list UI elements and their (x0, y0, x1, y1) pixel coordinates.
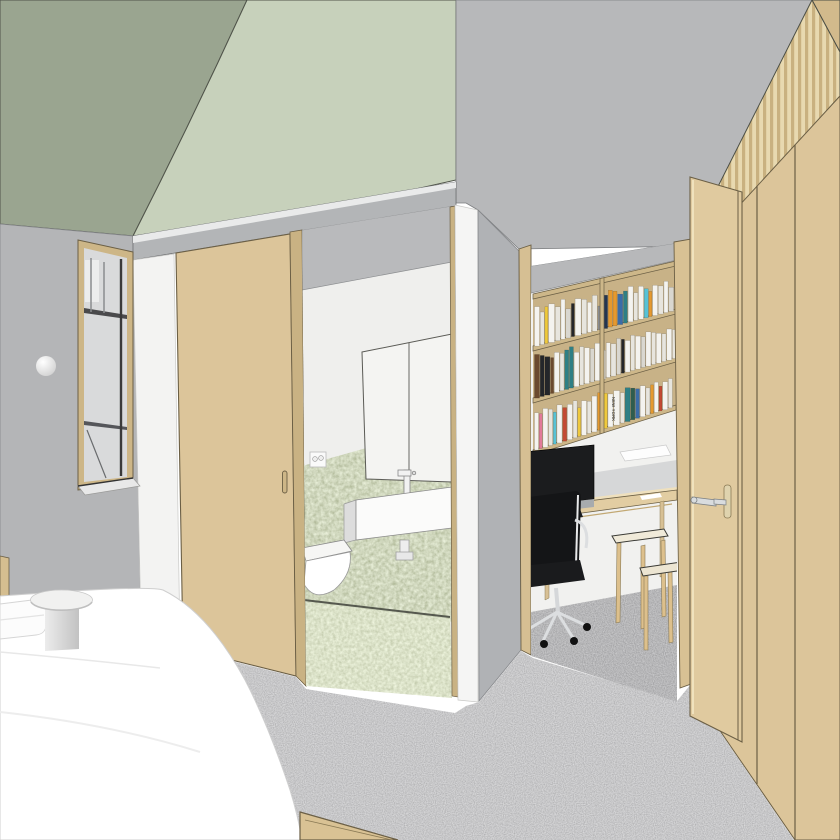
book-spine (618, 294, 623, 324)
book-spine (588, 302, 592, 332)
open-door-panel (690, 177, 742, 742)
book-spine (656, 333, 661, 363)
book-spine (595, 343, 600, 381)
book-spine (628, 286, 633, 321)
book-spine (634, 293, 638, 321)
book-spine (664, 281, 668, 312)
book-spine (557, 405, 562, 443)
sink-trap (396, 552, 413, 560)
book-spine (611, 344, 616, 376)
sink-side (344, 500, 356, 543)
interior-rendering: NEW YORK (0, 0, 840, 840)
book-spine (566, 309, 571, 338)
book-spine (567, 404, 572, 439)
sliding-door-recessed-pull (283, 471, 288, 493)
book-spine (569, 347, 573, 388)
book-spine (653, 285, 658, 315)
book-spine (640, 386, 645, 417)
window (78, 240, 140, 495)
book-spine (652, 332, 656, 364)
sliding-door-panel (176, 234, 296, 676)
book-spine (549, 304, 555, 343)
book-spine (639, 286, 644, 319)
book-spine (571, 304, 574, 337)
book-spine (625, 340, 630, 372)
book-spine (654, 382, 658, 412)
book-spine (551, 358, 554, 394)
book-spine (543, 408, 548, 447)
book-spine (625, 388, 630, 422)
window-view-light (85, 260, 99, 302)
book-spine (606, 343, 610, 378)
book-spine (623, 291, 627, 323)
book-spine (644, 289, 648, 318)
study: NEW YORK (521, 243, 691, 702)
door-handle-end (691, 497, 697, 503)
book-spine (565, 350, 569, 389)
book-spine (662, 334, 666, 362)
book-spine (646, 388, 650, 415)
chair-column (556, 588, 558, 612)
book-spine (554, 352, 559, 392)
shelf-divider (600, 278, 604, 434)
book-spine (553, 412, 556, 444)
study-left-jamb (519, 245, 531, 655)
book-spine (669, 287, 674, 311)
book-spine (613, 291, 617, 326)
book-spine (535, 307, 540, 347)
book-spine (659, 386, 662, 411)
bathroom-wall-cabinet (362, 334, 452, 482)
book-spine (620, 393, 624, 423)
corner-gray-face (478, 210, 521, 701)
book-spine (646, 332, 651, 366)
book-spine (573, 401, 577, 438)
light-switch (310, 452, 326, 467)
book-spine (574, 352, 579, 387)
book-spine (658, 286, 663, 314)
open-door (690, 177, 742, 742)
book-spine (587, 401, 591, 433)
book-spine (636, 336, 641, 369)
book-spine (592, 295, 597, 331)
book-spine (535, 354, 540, 398)
book-spine (585, 348, 590, 384)
book-spine (590, 349, 594, 383)
cabinet-doors (362, 334, 452, 482)
book-spine (649, 291, 652, 316)
book-spine (636, 389, 640, 418)
book-spine (663, 382, 668, 410)
book-spine (578, 408, 581, 437)
book-spine (555, 307, 560, 341)
table-pedestal (45, 604, 79, 651)
book-spine (617, 338, 621, 374)
book-spine (621, 339, 624, 373)
book-spine (545, 307, 548, 344)
book-spine (540, 355, 544, 396)
bathroom (302, 206, 455, 714)
book-spine (582, 401, 587, 436)
book-spine (545, 357, 550, 395)
book-spine (561, 299, 565, 339)
book-spine (535, 413, 539, 450)
book-spine (641, 337, 645, 368)
book-spine (651, 385, 654, 414)
book-spine (540, 312, 544, 345)
book-spine (575, 299, 581, 336)
book-spine (668, 379, 672, 408)
book-spine (631, 388, 635, 420)
featured-book-spine-label: NEW YORK (611, 397, 616, 421)
book-spine (582, 299, 587, 333)
book-spine (560, 353, 564, 390)
book-spine (667, 329, 672, 360)
book-spine (580, 347, 584, 385)
sphere-wall-lamp (36, 356, 56, 376)
door-lever-handle-2 (714, 499, 726, 505)
book-spine (592, 396, 597, 432)
book-spine (563, 408, 567, 442)
book-spine (539, 414, 542, 449)
book-spine (631, 335, 635, 370)
corner-white-strip (455, 205, 478, 702)
book-spine (608, 290, 612, 327)
book-spine (549, 409, 553, 445)
cabinet-knob (412, 471, 416, 475)
white-wall-strip (133, 254, 180, 646)
